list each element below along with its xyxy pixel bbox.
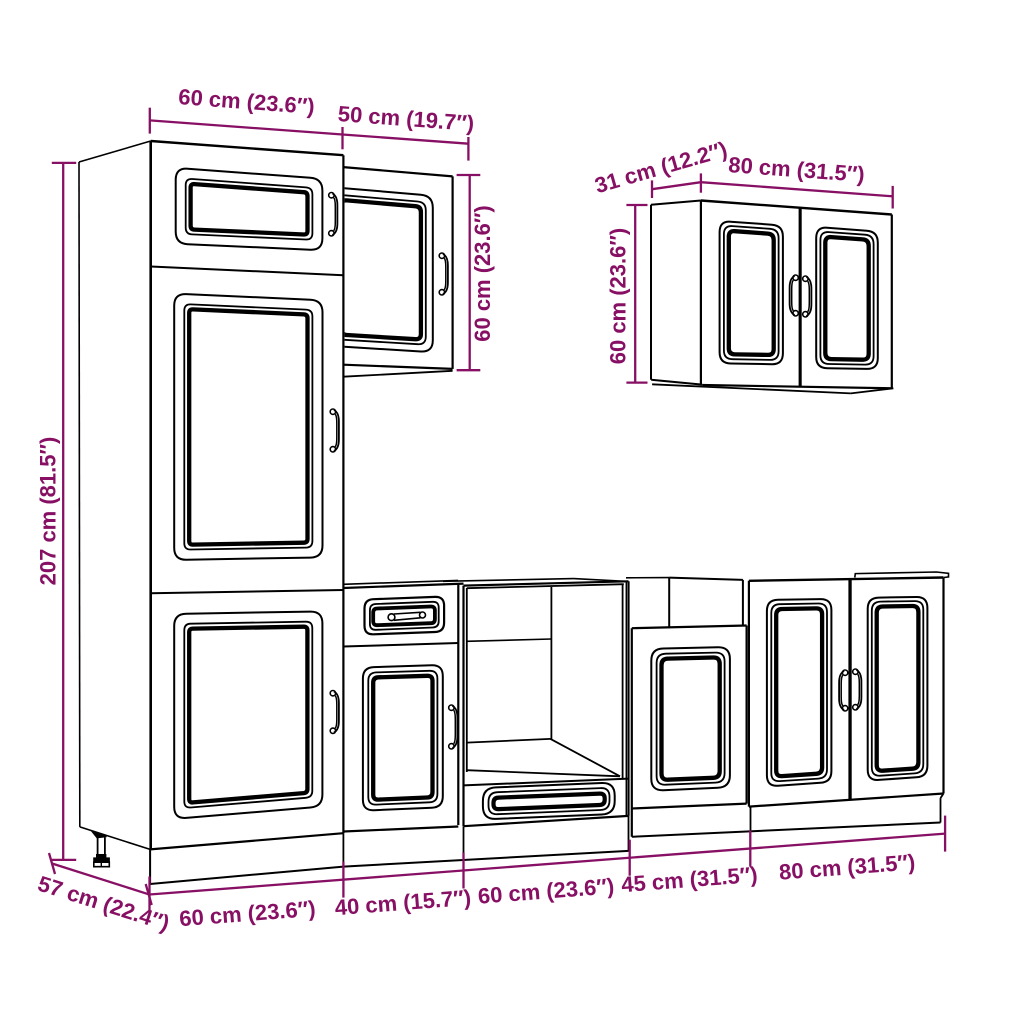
svg-text:60 cm (23.6″): 60 cm (23.6″) bbox=[470, 205, 495, 342]
svg-text:60 cm (23.6″): 60 cm (23.6″) bbox=[606, 228, 631, 365]
svg-text:207 cm (81.5″): 207 cm (81.5″) bbox=[36, 437, 61, 586]
